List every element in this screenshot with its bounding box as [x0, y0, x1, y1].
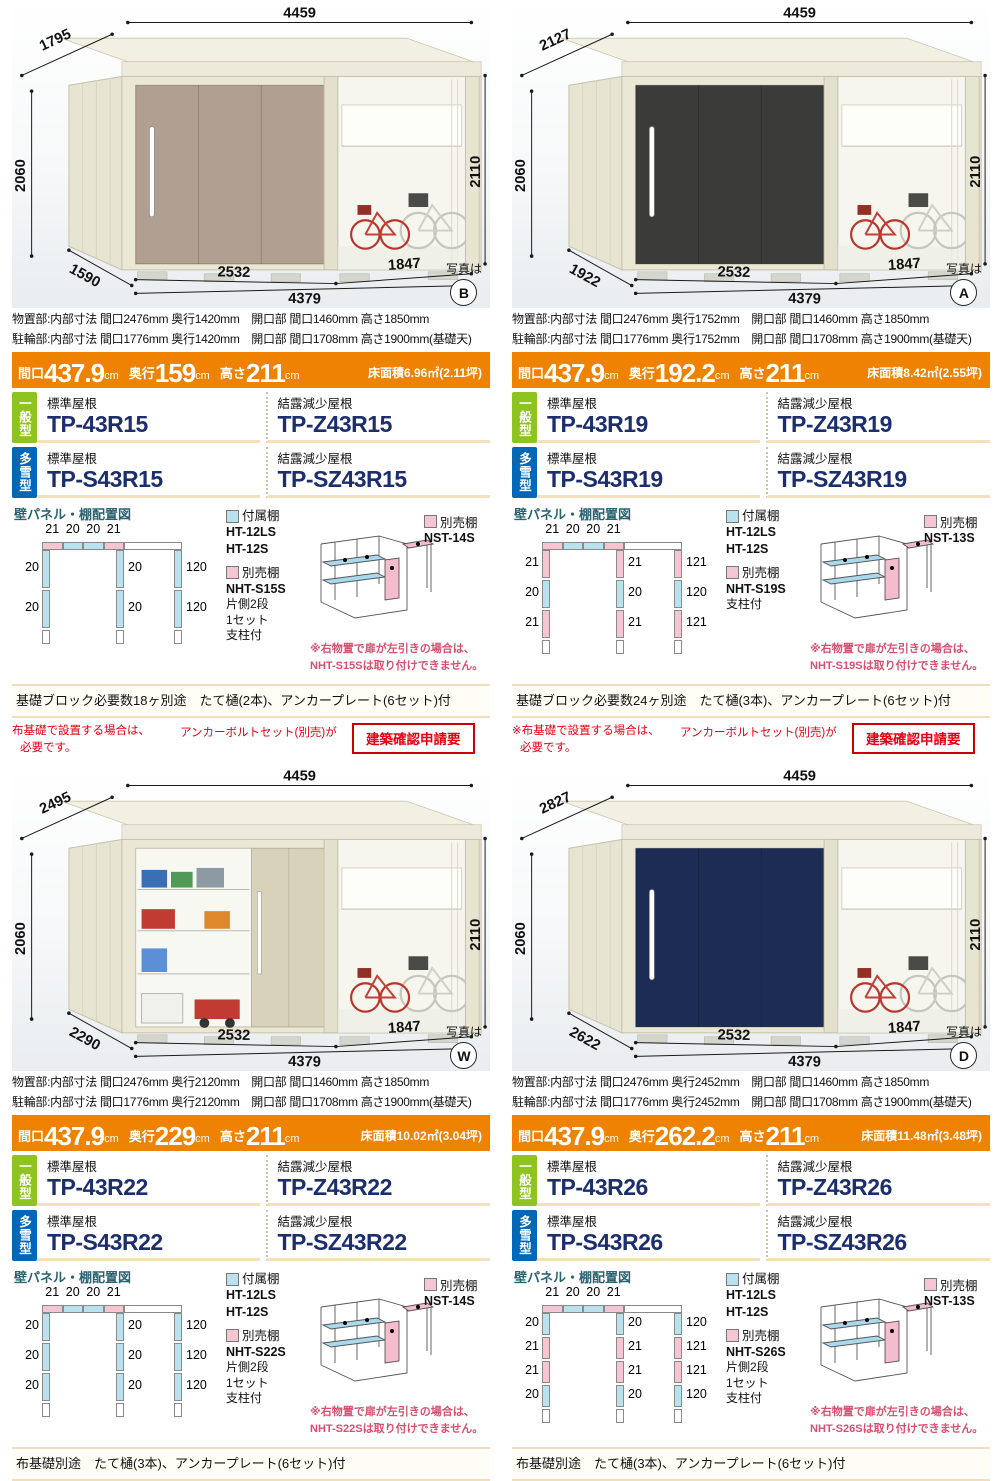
dim-left-height-label: 2060 — [513, 922, 529, 955]
model-number: TP-S43R22 — [47, 1230, 260, 1255]
dim-right-height-label: 2110 — [968, 919, 984, 951]
dim-width-label: 4459 — [783, 6, 816, 22]
anchor-bolt-note: アンカーボルトセット(別売)が — [180, 723, 342, 740]
wall-panel-title: 壁パネル・棚配置図 — [14, 1267, 131, 1286]
attached-shelf-icon — [226, 1273, 239, 1286]
dim-left-height-label: 2060 — [13, 922, 29, 955]
model-number: TP-43R22 — [47, 1175, 260, 1200]
bike-basket — [909, 956, 929, 970]
roof-top — [61, 801, 473, 825]
shelf-arrangement-illustration — [814, 514, 936, 632]
shelf-section: 壁パネル・棚配置図 21202021202020202020120120120 … — [12, 1267, 490, 1441]
dim-storage-width-label: 2532 — [717, 264, 750, 281]
bay-window — [342, 105, 462, 146]
door-handle — [649, 890, 654, 980]
building-permit-box: 建築確認申請要 — [352, 723, 475, 754]
depth-value: 192.2 — [655, 360, 715, 388]
dim-top-depth-label: 2127 — [537, 26, 573, 54]
optional-shelf-icon — [424, 515, 437, 528]
dim-width-label: 4459 — [283, 769, 316, 785]
dim-left-height-label: 2060 — [513, 159, 529, 192]
optional-shelf-right-label: 別売棚 NST-13S — [924, 1275, 990, 1308]
storage-spec-line: 物置部:内部寸法 間口2476mm 奥行2120mm 開口部 間口1460mm … — [12, 1073, 490, 1093]
dim-right-height-label: 2110 — [468, 919, 484, 951]
product-quadrant: 布基礎で設置する場合は、 必要です。 アンカーボルトセット(別売)が 建築確認申… — [0, 718, 500, 1481]
product-illustration: 4459 2495 2060 2110 2532 1847 4379 2290 … — [12, 763, 490, 1071]
dimensions-banner: 間口 437.9 cm 奥行 262.2 cm 高さ 211 cm 床面積11.… — [512, 1115, 990, 1151]
photo-letter: A — [950, 279, 977, 306]
attached-shelf-lower — [823, 573, 885, 584]
width-value: 437.9 — [44, 1123, 104, 1151]
snow-type-row: 多雪型 標準屋根 TP-S43R19 結露減少屋根 TP-SZ43R19 — [512, 447, 990, 498]
wall-panel-title: 壁パネル・棚配置図 — [514, 504, 631, 523]
dim-bike-width-label: 1847 — [887, 1019, 921, 1037]
dimensions-banner: 間口 437.9 cm 奥行 159 cm 高さ 211 cm 床面積6.96㎡… — [12, 352, 490, 388]
dim-top-depth-label: 1795 — [37, 26, 73, 54]
optional-shelf-icon — [226, 1329, 239, 1342]
foundation-warning-text: 布基礎で設置する場合は、 必要です。 — [12, 723, 170, 756]
shelf-labels: 付属棚 HT-12LS HT-12S 別売棚 NHT-S26S 片側2段 1セッ… — [726, 1271, 818, 1407]
dim-total-width-label: 4379 — [288, 1054, 321, 1071]
height-value: 211 — [246, 360, 285, 388]
optional-shelf-model: NHT-S19S — [726, 581, 818, 597]
optional-shelf-model: NHT-S15S — [226, 581, 318, 597]
snow-type-row: 多雪型 標準屋根 TP-S43R15 結露減少屋根 TP-SZ43R15 — [12, 447, 490, 498]
partition-post — [324, 839, 338, 1032]
optional-shelf-tall — [885, 558, 899, 600]
photo-letter: D — [950, 1042, 977, 1069]
stored-box — [142, 870, 168, 888]
door-handle — [649, 127, 654, 217]
dim-right-height-label: 2110 — [468, 156, 484, 188]
foundation-note: 布基礎別途 たて樋(3本)、アンカープレート(6セット)付 — [12, 1447, 490, 1481]
wall-panel-diagram: 2120202120202020120120 — [12, 522, 222, 674]
model-number: TP-Z43R22 — [278, 1175, 491, 1200]
attached-shelf-icon — [726, 510, 739, 523]
roof-top — [61, 38, 473, 62]
general-type-badge: 一般型 — [512, 392, 537, 443]
shelf-labels: 付属棚 HT-12LS HT-12S 別売棚 NHT-S22S 片側2段 1セッ… — [226, 1271, 318, 1407]
shelf-warning: ※右物置で扉が左引きの場合は、 NHT-S19Sは取り付けできません。 — [810, 641, 990, 674]
shed-drawing: 4459 2827 2060 2110 2532 1847 4379 2622 — [512, 763, 990, 1071]
model-grid: 一般型 標準屋根 TP-43R19 結露減少屋根 TP-Z43R19 多雪型 標… — [512, 388, 990, 504]
model-number: TP-43R15 — [47, 412, 260, 437]
wall-panel-title: 壁パネル・棚配置図 — [514, 1267, 631, 1286]
snow-type-badge: 多雪型 — [12, 447, 37, 498]
dim-total-width-label: 4379 — [788, 1054, 821, 1071]
shelf-section: 壁パネル・棚配置図 212020212021212020212120120121… — [512, 1267, 990, 1441]
wall-panel-diagram: 212020212021212020212120120121121120 — [512, 1285, 722, 1437]
height-value: 211 — [246, 1123, 285, 1151]
model-number: TP-S43R26 — [547, 1230, 760, 1255]
toolbox — [142, 909, 175, 929]
attached-shelf-lower — [323, 573, 385, 584]
open-door-group — [136, 848, 326, 1028]
shelf-arrangement-illustration — [814, 1277, 936, 1395]
shelf-warning: ※右物置で扉が左引きの場合は、 NHT-S15Sは取り付けできません。 — [310, 641, 490, 674]
floor-area: 床面積11.48㎡(3.48坪) — [861, 1127, 982, 1151]
model-number: TP-S43R19 — [547, 467, 760, 492]
optional-shelf-model: NHT-S26S — [726, 1344, 818, 1360]
floor-area: 床面積6.96㎡(2.11坪) — [368, 364, 482, 388]
storage-spec-line: 物置部:内部寸法 間口2476mm 奥行1752mm 開口部 間口1460mm … — [512, 310, 990, 330]
cooler-box — [142, 994, 183, 1023]
shed-drawing: 4459 2495 2060 2110 2532 1847 4379 2290 — [12, 763, 490, 1071]
bay-window — [842, 868, 962, 909]
optional-shelf-tall — [885, 1321, 899, 1363]
shed-door — [636, 85, 824, 264]
shelf-section: 壁パネル・棚配置図 2120202120202020120120 付属棚 HT-… — [12, 504, 490, 678]
model-grid: 一般型 標準屋根 TP-43R26 結露減少屋根 TP-Z43R26 多雪型 標… — [512, 1151, 990, 1267]
shelf-warning: ※右物置で扉が左引きの場合は、 NHT-S22Sは取り付けできません。 — [310, 1404, 490, 1437]
model-number: TP-Z43R26 — [778, 1175, 991, 1200]
closed-door-group — [636, 85, 824, 264]
general-type-row: 一般型 標準屋根 TP-43R26 結露減少屋根 TP-Z43R26 — [512, 1155, 990, 1206]
roof-fascia — [622, 825, 981, 840]
bike-spec-line: 駐輪部:内部寸法 間口1776mm 奥行1420mm 開口部 間口1708mm … — [12, 330, 490, 350]
photo-letter: W — [450, 1042, 477, 1069]
wall-panel-diagram: 21202021212021212021121120121 — [512, 522, 722, 674]
bike-basket — [909, 193, 929, 207]
shelf-arrangement-illustration — [314, 514, 436, 632]
snow-type-row: 多雪型 標準屋根 TP-S43R26 結露減少屋根 TP-SZ43R26 — [512, 1210, 990, 1261]
snow-type-badge: 多雪型 — [512, 1210, 537, 1261]
model-number: TP-Z43R15 — [278, 412, 491, 437]
general-type-row: 一般型 標準屋根 TP-43R15 結露減少屋根 TP-Z43R15 — [12, 392, 490, 443]
optional-shelf-right-label: 別売棚 NST-14S — [424, 1275, 490, 1308]
optional-shelf-model: NHT-S22S — [226, 1344, 318, 1360]
dim-storage-width-label: 2532 — [717, 1027, 750, 1044]
shelf-arrangement-illustration — [314, 1277, 436, 1395]
door-handle — [149, 127, 154, 217]
dim-bike-width-label: 1847 — [887, 256, 921, 274]
bay-window — [842, 105, 962, 146]
anchor-bolt-note: アンカーボルトセット(別売)が — [680, 723, 842, 740]
product-quadrant: 4459 2127 2060 2110 2532 1847 4379 1922 … — [500, 0, 1000, 718]
dim-right-height-label: 2110 — [968, 156, 984, 188]
optional-shelf-icon — [226, 566, 239, 579]
spec-lines: 物置部:内部寸法 間口2476mm 奥行1420mm 開口部 間口1460mm … — [12, 308, 490, 352]
model-grid: 一般型 標準屋根 TP-43R15 結露減少屋根 TP-Z43R15 多雪型 標… — [12, 388, 490, 504]
construction-notice: 布基礎で設置する場合は、 必要です。 アンカーボルトセット(別売)が 建築確認申… — [12, 718, 490, 763]
dim-storage-width-label: 2532 — [217, 264, 250, 281]
shelf-warning: ※右物置で扉が左引きの場合は、 NHT-S26Sは取り付けできません。 — [810, 1404, 990, 1437]
spec-lines: 物置部:内部寸法 間口2476mm 奥行1752mm 開口部 間口1460mm … — [512, 308, 990, 352]
optional-shelf-tall — [385, 1321, 399, 1363]
roof-fascia — [122, 825, 481, 840]
bay-window — [342, 868, 462, 909]
optional-shelf-tall — [385, 558, 399, 600]
side-wall — [69, 839, 122, 1032]
general-type-badge: 一般型 — [512, 1155, 537, 1206]
photo-ref-badge: 写真は A — [946, 260, 982, 306]
bike-basket — [409, 193, 429, 207]
general-type-row: 一般型 標準屋根 TP-43R22 結露減少屋根 TP-Z43R22 — [12, 1155, 490, 1206]
building-permit-box: 建築確認申請要 — [852, 723, 975, 754]
attached-shelf-upper — [823, 555, 885, 566]
snow-type-row: 多雪型 標準屋根 TP-S43R22 結露減少屋根 TP-SZ43R22 — [12, 1210, 490, 1261]
optional-shelf-icon — [424, 1278, 437, 1291]
general-type-badge: 一般型 — [12, 1155, 37, 1206]
model-number: TP-43R26 — [547, 1175, 760, 1200]
product-quadrant: 4459 1795 2060 2110 2532 1847 4379 1590 … — [0, 0, 500, 718]
wall-panel-diagram: 21202021202020202020120120120 — [12, 1285, 222, 1437]
optional-shelf-icon — [924, 515, 937, 528]
shed-drawing: 4459 1795 2060 2110 2532 1847 4379 1590 — [12, 0, 490, 308]
width-value: 437.9 — [44, 360, 104, 388]
model-grid: 一般型 標準屋根 TP-43R22 結露減少屋根 TP-Z43R22 多雪型 標… — [12, 1151, 490, 1267]
width-value: 437.9 — [544, 1123, 604, 1151]
photo-ref-badge: 写真は W — [446, 1023, 482, 1069]
general-type-badge: 一般型 — [12, 392, 37, 443]
optional-shelf-right-label: 別売棚 NST-13S — [924, 512, 990, 545]
dim-storage-width-label: 2532 — [217, 1027, 250, 1044]
dim-top-depth-label: 2495 — [37, 789, 73, 817]
shelf-section: 壁パネル・棚配置図 21202021212021212021121120121 … — [512, 504, 990, 678]
snow-type-badge: 多雪型 — [512, 447, 537, 498]
foundation-note: 布基礎別途 たて樋(3本)、アンカープレート(6セット)付 — [512, 1447, 990, 1481]
side-wall — [69, 76, 122, 269]
dimensions-banner: 間口 437.9 cm 奥行 229 cm 高さ 211 cm 床面積10.02… — [12, 1115, 490, 1151]
dim-bike-width-label: 1847 — [387, 1019, 421, 1037]
product-illustration: 4459 2827 2060 2110 2532 1847 4379 2622 … — [512, 763, 990, 1071]
dim-left-height-label: 2060 — [13, 159, 29, 192]
foundation-note: 基礎ブロック必要数24ヶ別途 たて樋(3本)、アンカープレート(6セット)付 — [512, 684, 990, 718]
model-number: TP-SZ43R19 — [778, 467, 991, 492]
partition-post — [824, 839, 838, 1032]
attached-shelf-icon — [226, 510, 239, 523]
shelf-labels: 付属棚 HT-12LS HT-12S 別売棚 NHT-S15S 片側2段 1セッ… — [226, 508, 318, 644]
width-value: 437.9 — [544, 360, 604, 388]
attached-shelf-icon — [726, 1273, 739, 1286]
optional-shelf-icon — [726, 1329, 739, 1342]
roof-top — [561, 801, 973, 825]
bike-spec-line: 駐輪部:内部寸法 間口1776mm 奥行2452mm 開口部 間口1708mm … — [512, 1093, 990, 1113]
bike-spec-line: 駐輪部:内部寸法 間口1776mm 奥行2120mm 開口部 間口1708mm … — [12, 1093, 490, 1113]
photo-letter: B — [450, 279, 477, 306]
shed-door — [636, 848, 824, 1027]
storage-spec-line: 物置部:内部寸法 間口2476mm 奥行2452mm 開口部 間口1460mm … — [512, 1073, 990, 1093]
construction-notice: ※布基礎で設置する場合は、 必要です。 アンカーボルトセット(別売)が 建築確認… — [512, 718, 990, 763]
dim-bike-width-label: 1847 — [387, 256, 421, 274]
red-wagon — [195, 999, 240, 1019]
shed-door — [136, 85, 324, 264]
attached-shelf-upper — [323, 1318, 385, 1329]
dim-width-label: 4459 — [783, 769, 816, 785]
model-number: TP-SZ43R26 — [778, 1230, 991, 1255]
bike-basket — [409, 956, 429, 970]
photo-ref-badge: 写真は B — [446, 260, 482, 306]
shed-drawing: 4459 2127 2060 2110 2532 1847 4379 1922 — [512, 0, 990, 308]
product-quadrant: ※布基礎で設置する場合は、 必要です。 アンカーボルトセット(別売)が 建築確認… — [500, 718, 1000, 1481]
side-wall — [569, 839, 622, 1032]
roof-top — [561, 38, 973, 62]
dim-total-width-label: 4379 — [288, 291, 321, 308]
depth-value: 229 — [155, 1123, 195, 1151]
model-number: TP-SZ43R15 — [278, 467, 491, 492]
spec-lines: 物置部:内部寸法 間口2476mm 奥行2120mm 開口部 間口1460mm … — [12, 1071, 490, 1115]
product-illustration: 4459 1795 2060 2110 2532 1847 4379 1590 … — [12, 0, 490, 308]
side-wall — [569, 76, 622, 269]
optional-shelf-right-label: 別売棚 NST-14S — [424, 512, 490, 545]
model-number: TP-Z43R19 — [778, 412, 991, 437]
optional-shelf-icon — [924, 1278, 937, 1291]
closed-door-group — [636, 848, 824, 1027]
bike-spec-line: 駐輪部:内部寸法 間口1776mm 奥行1752mm 開口部 間口1708mm … — [512, 330, 990, 350]
snow-type-badge: 多雪型 — [12, 1210, 37, 1261]
foundation-note: 基礎ブロック必要数18ヶ別途 たて樋(2本)、アンカープレート(6セット)付 — [12, 684, 490, 718]
catalog-grid: 4459 1795 2060 2110 2532 1847 4379 1590 … — [0, 0, 1000, 1481]
foundation-warning-text: ※布基礎で設置する場合は、 必要です。 — [512, 723, 670, 756]
depth-value: 159 — [155, 360, 195, 388]
roof-fascia — [622, 62, 981, 77]
height-value: 211 — [766, 360, 805, 388]
dim-total-width-label: 4379 — [788, 291, 821, 308]
storage-spec-line: 物置部:内部寸法 間口2476mm 奥行1420mm 開口部 間口1460mm … — [12, 310, 490, 330]
model-number: TP-S43R15 — [47, 467, 260, 492]
height-value: 211 — [766, 1123, 805, 1151]
closed-door-group — [136, 85, 324, 264]
optional-shelf-icon — [726, 566, 739, 579]
floor-area: 床面積10.02㎡(3.04坪) — [361, 1127, 482, 1151]
attached-shelf-upper — [323, 555, 385, 566]
model-number: TP-43R19 — [547, 412, 760, 437]
wall-panel-title: 壁パネル・棚配置図 — [14, 504, 131, 523]
partition-post — [324, 76, 338, 269]
photo-ref-badge: 写真は D — [946, 1023, 982, 1069]
dimensions-banner: 間口 437.9 cm 奥行 192.2 cm 高さ 211 cm 床面積8.4… — [512, 352, 990, 388]
attached-shelf-upper — [823, 1318, 885, 1329]
model-number: TP-SZ43R22 — [278, 1230, 491, 1255]
dim-width-label: 4459 — [283, 6, 316, 22]
attached-shelf-lower — [323, 1336, 385, 1347]
dim-top-depth-label: 2827 — [537, 789, 573, 817]
spec-lines: 物置部:内部寸法 間口2476mm 奥行2452mm 開口部 間口1460mm … — [512, 1071, 990, 1115]
attached-shelf-lower — [823, 1336, 885, 1347]
general-type-row: 一般型 標準屋根 TP-43R19 結露減少屋根 TP-Z43R19 — [512, 392, 990, 443]
shelf-labels: 付属棚 HT-12LS HT-12S 別売棚 NHT-S19S 支柱付 — [726, 508, 818, 613]
depth-value: 262.2 — [655, 1123, 715, 1151]
partition-post — [824, 76, 838, 269]
product-illustration: 4459 2127 2060 2110 2532 1847 4379 1922 … — [512, 0, 990, 308]
roof-fascia — [122, 62, 481, 77]
floor-area: 床面積8.42㎡(2.55坪) — [867, 364, 982, 388]
